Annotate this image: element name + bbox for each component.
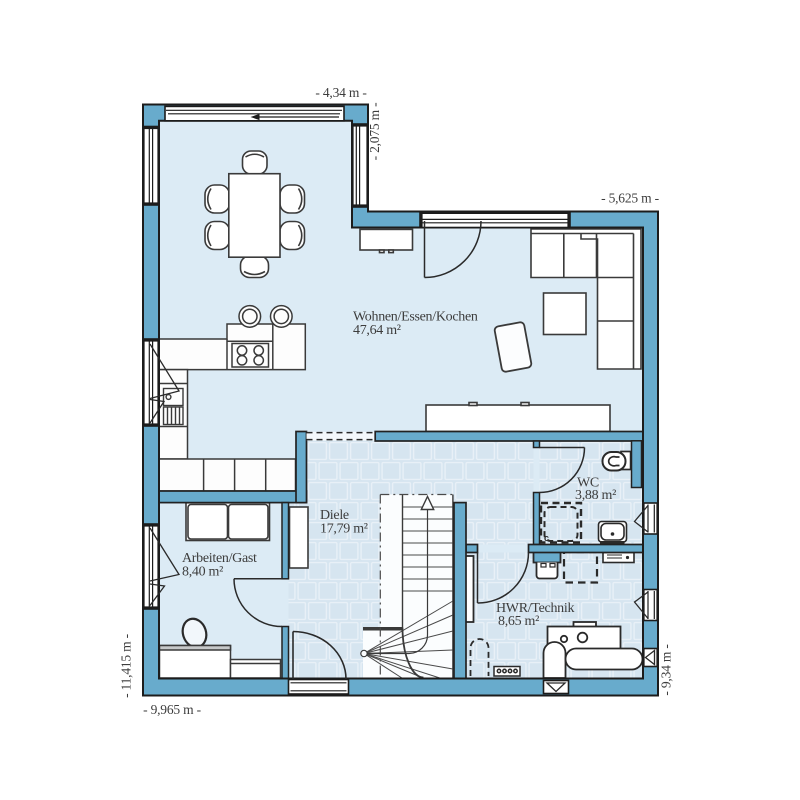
svg-text:- 11,415 m -: - 11,415 m - <box>119 633 134 698</box>
svg-text:- 9,34 m -: - 9,34 m - <box>659 644 674 696</box>
svg-text:47,64 m²: 47,64 m² <box>353 323 401 338</box>
svg-text:8,65 m²: 8,65 m² <box>498 614 539 629</box>
svg-text:c: c <box>544 533 549 543</box>
svg-text:- 2,075 m -: - 2,075 m - <box>367 102 382 160</box>
svg-text:3,88 m²: 3,88 m² <box>575 488 616 503</box>
svg-text:- 5,625 m -: - 5,625 m - <box>601 191 659 206</box>
svg-text:17,79 m²: 17,79 m² <box>320 522 368 537</box>
svg-text:- 4,34 m -: - 4,34 m - <box>315 85 367 100</box>
svg-text:8,40 m²: 8,40 m² <box>182 565 223 580</box>
svg-text:- 9,965 m -: - 9,965 m - <box>143 702 201 717</box>
